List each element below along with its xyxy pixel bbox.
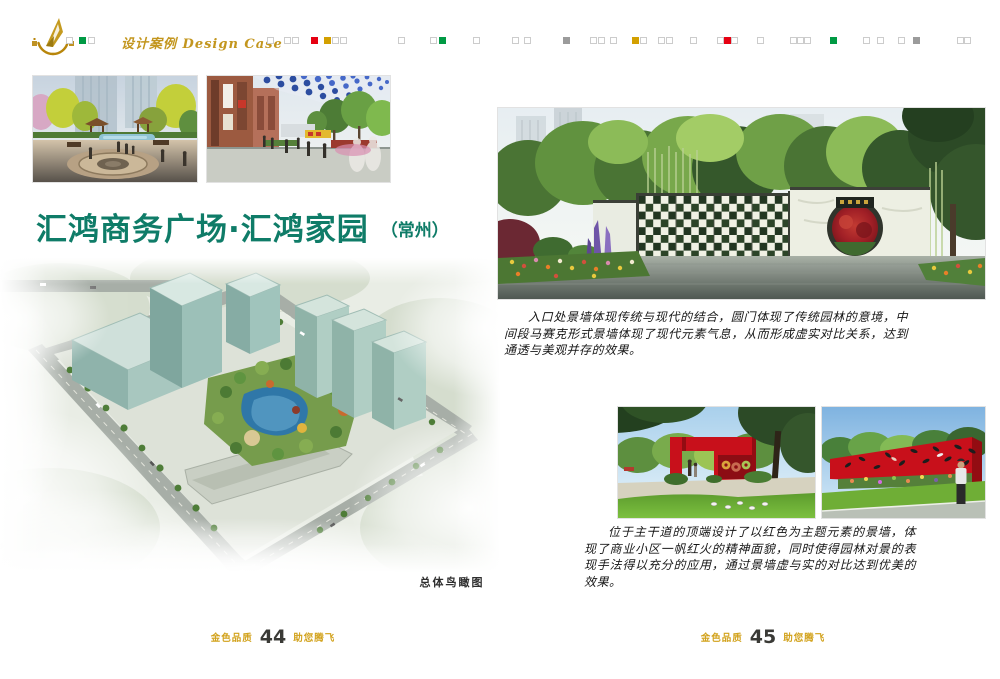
decor-square	[524, 37, 531, 44]
decor-square	[898, 37, 905, 44]
project-title: 汇鸿商务广场·汇鸿家园	[36, 212, 369, 248]
lawn	[618, 493, 815, 518]
aerial-caption: 总体鸟瞰图	[392, 574, 512, 590]
decor-square	[913, 37, 920, 44]
decor-square	[658, 37, 665, 44]
bench	[624, 467, 634, 471]
brand-text: 金色品质	[211, 630, 253, 644]
decor-square	[877, 37, 884, 44]
brand-text: 金色品质	[701, 630, 743, 644]
decor-square	[757, 37, 764, 44]
photo-aerial-overview-art	[0, 258, 500, 572]
page-number: 45	[750, 626, 776, 648]
entrance-wall	[593, 187, 930, 263]
circular-paving	[67, 149, 159, 179]
decor-square	[284, 37, 291, 44]
photo-red-gate-plaza-art	[618, 407, 815, 518]
decor-square	[666, 37, 673, 44]
decor-square	[590, 37, 597, 44]
decor-square	[863, 37, 870, 44]
decor-square	[804, 37, 811, 44]
photo-red-feature-wall-art	[822, 407, 985, 518]
project-location: （常州）	[381, 221, 449, 241]
decor-square	[512, 37, 519, 44]
decor-square	[790, 37, 797, 44]
planter	[67, 142, 81, 147]
footer-left: 金色品质 44 助您腾飞	[163, 626, 383, 648]
decor-square	[398, 37, 405, 44]
decor-square	[79, 37, 86, 44]
decor-square	[964, 37, 971, 44]
photo-aerial-overview	[0, 258, 500, 572]
decor-square	[430, 37, 437, 44]
photo-commercial-street	[207, 76, 390, 182]
photo-plaza-pond	[33, 76, 197, 182]
design-case-label-zh: 设计案例	[121, 37, 177, 52]
decor-square	[292, 37, 299, 44]
decor-square	[324, 37, 331, 44]
photo-red-gate-plaza	[618, 407, 815, 518]
entrance-description: 入口处景墙体现传统与现代的结合，圆门体现了传统园林的意境，中间段马赛克形式景墙体…	[504, 309, 908, 359]
decor-square	[957, 37, 964, 44]
decor-square	[610, 37, 617, 44]
decor-square	[332, 37, 339, 44]
flowers	[335, 144, 371, 156]
decor-square	[311, 37, 318, 44]
page-number: 44	[260, 626, 286, 648]
decor-square	[88, 37, 95, 44]
decor-square	[632, 37, 639, 44]
decor-square	[830, 37, 837, 44]
decor-square	[690, 37, 697, 44]
decor-square	[340, 37, 347, 44]
project-title-row: 汇鸿商务广场·汇鸿家园（常州）	[36, 204, 449, 249]
decor-square	[731, 37, 738, 44]
slogan-text: 助您腾飞	[293, 630, 335, 644]
decor-square	[66, 37, 73, 44]
brochure-spread: 设计案例 Design Case	[0, 0, 1000, 679]
decor-square	[267, 37, 274, 44]
decor-square	[640, 37, 647, 44]
planter	[153, 140, 169, 145]
photo-commercial-street-art	[207, 76, 390, 182]
decor-square	[797, 37, 804, 44]
decor-square	[717, 37, 724, 44]
slogan-text: 助您腾飞	[783, 630, 825, 644]
photo-red-feature-wall	[822, 407, 985, 518]
planter	[265, 140, 297, 146]
photo-entrance-wall	[498, 108, 985, 299]
decor-square	[598, 37, 605, 44]
decor-square	[473, 37, 480, 44]
red-wall-description: 位于主干道的顶端设计了以红色为主题元素的景墙，体现了商业小区一帆红火的精神面貌，…	[584, 524, 916, 590]
design-case-label: 设计案例 Design Case	[121, 33, 283, 52]
footer-right: 金色品质 45 助您腾飞	[653, 626, 873, 648]
decor-square	[724, 37, 731, 44]
decor-square	[439, 37, 446, 44]
photo-entrance-wall-art	[498, 108, 985, 299]
photo-plaza-pond-art	[33, 76, 197, 182]
decor-square	[563, 37, 570, 44]
